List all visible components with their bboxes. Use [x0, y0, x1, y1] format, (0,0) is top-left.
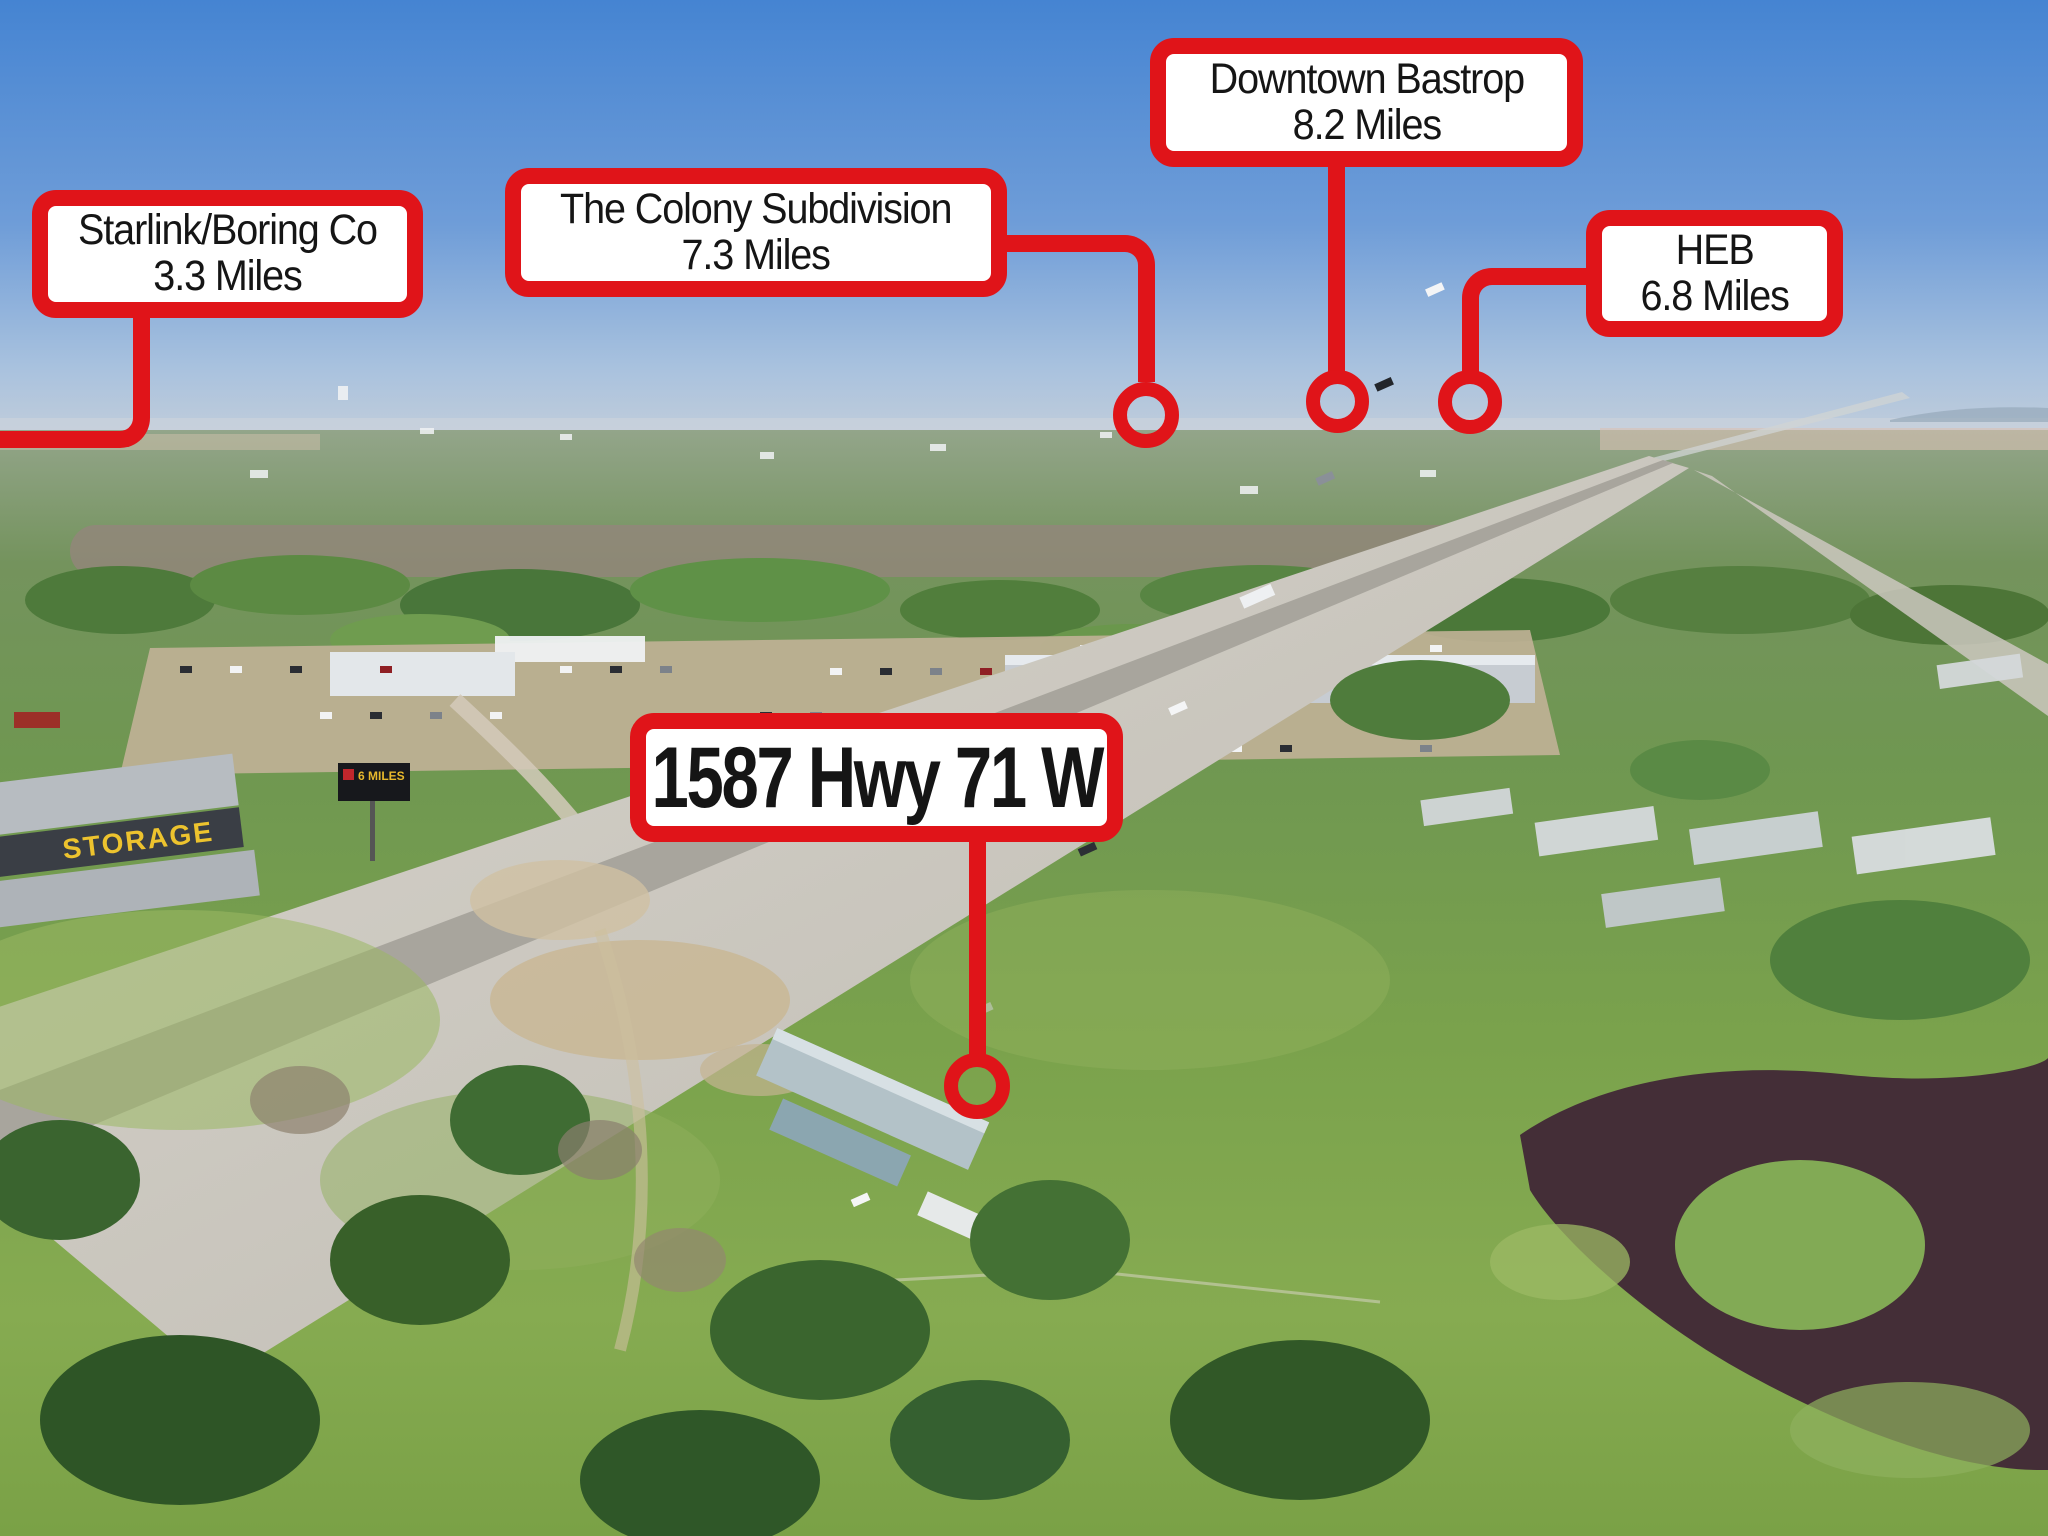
property-address-label: 1587 Hwy 71 W [651, 735, 1102, 821]
starlink-connector-line [0, 308, 150, 448]
property-marker-circle [944, 1053, 1010, 1119]
billboard-text: 6 MILES [358, 769, 405, 783]
bastrop-marker-circle [1306, 370, 1369, 433]
address-connector-stem [969, 838, 986, 1055]
bastrop-connector-stem [1328, 160, 1345, 372]
callout-starlink-text: Starlink/Boring Co 3.3 Miles [78, 208, 377, 299]
callout-starlink-name: Starlink/Boring Co [78, 206, 377, 254]
callout-heb-name: HEB [1675, 226, 1753, 274]
callout-colony-text: The Colony Subdivision 7.3 Miles [560, 187, 951, 278]
callout-bastrop-distance: 8.2 Miles [1209, 103, 1523, 149]
callout-heb-box: HEB 6.8 Miles [1586, 210, 1843, 337]
aerial-annotated-photo: STORAGE 6 MILES [0, 0, 2048, 1536]
callout-colony-distance: 7.3 Miles [560, 233, 951, 279]
callout-colony-name: The Colony Subdivision [560, 185, 951, 233]
shipping-container [14, 712, 60, 728]
pond-island-tree [1675, 1160, 1925, 1330]
callout-bastrop-box: Downtown Bastrop 8.2 Miles [1150, 38, 1583, 167]
callout-bastrop-text: Downtown Bastrop 8.2 Miles [1209, 57, 1523, 148]
callout-heb-text: HEB 6.8 Miles [1640, 228, 1788, 319]
callout-address-box: 1587 Hwy 71 W [630, 713, 1123, 842]
colony-connector-line [1007, 235, 1155, 382]
callout-starlink-distance: 3.3 Miles [78, 254, 377, 300]
callout-colony-box: The Colony Subdivision 7.3 Miles [505, 168, 1007, 297]
callout-bastrop-name: Downtown Bastrop [1209, 55, 1523, 103]
callout-starlink-box: Starlink/Boring Co 3.3 Miles [32, 190, 423, 318]
callout-heb-distance: 6.8 Miles [1640, 274, 1788, 320]
heb-connector-line [1462, 268, 1586, 372]
colony-marker-circle [1113, 382, 1179, 448]
heb-marker-circle [1438, 370, 1502, 434]
